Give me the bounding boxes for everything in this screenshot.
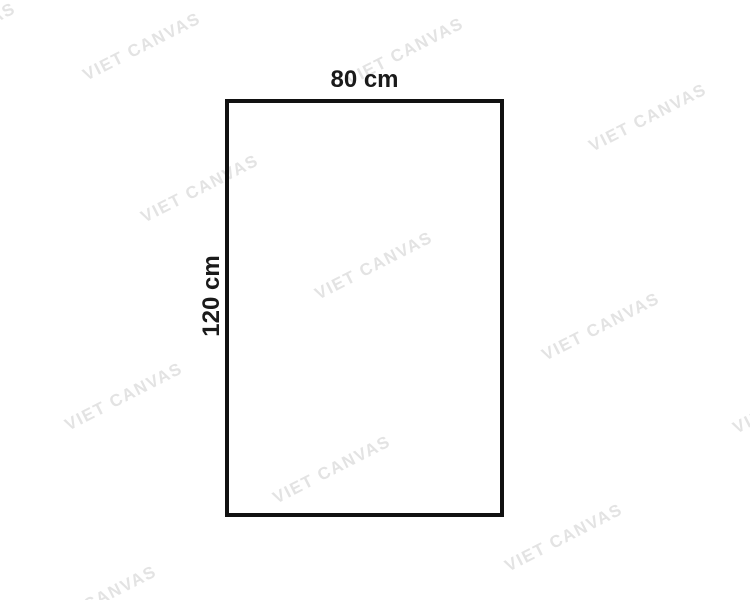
watermark-text: VIET CANVAS: [586, 80, 711, 157]
watermark-text: VIET CANVAS: [730, 362, 750, 439]
watermark-text: VIET CANVAS: [80, 9, 205, 86]
watermark-text: VIET CANVAS: [502, 500, 627, 577]
width-dimension-label: 80 cm: [225, 66, 504, 94]
watermark-text: VIET CANVAS: [36, 562, 161, 600]
canvas-rectangle-outline: [225, 99, 504, 517]
watermark-text: VIET CANVAS: [539, 289, 664, 366]
dimension-diagram: VIET CANVAS VIET CANVAS VIET CANVAS VIET…: [0, 0, 750, 600]
height-dimension-label: 120 cm: [198, 255, 226, 336]
watermark-text: VIET CANVAS: [0, 0, 19, 75]
watermark-text: VIET CANVAS: [62, 359, 187, 436]
